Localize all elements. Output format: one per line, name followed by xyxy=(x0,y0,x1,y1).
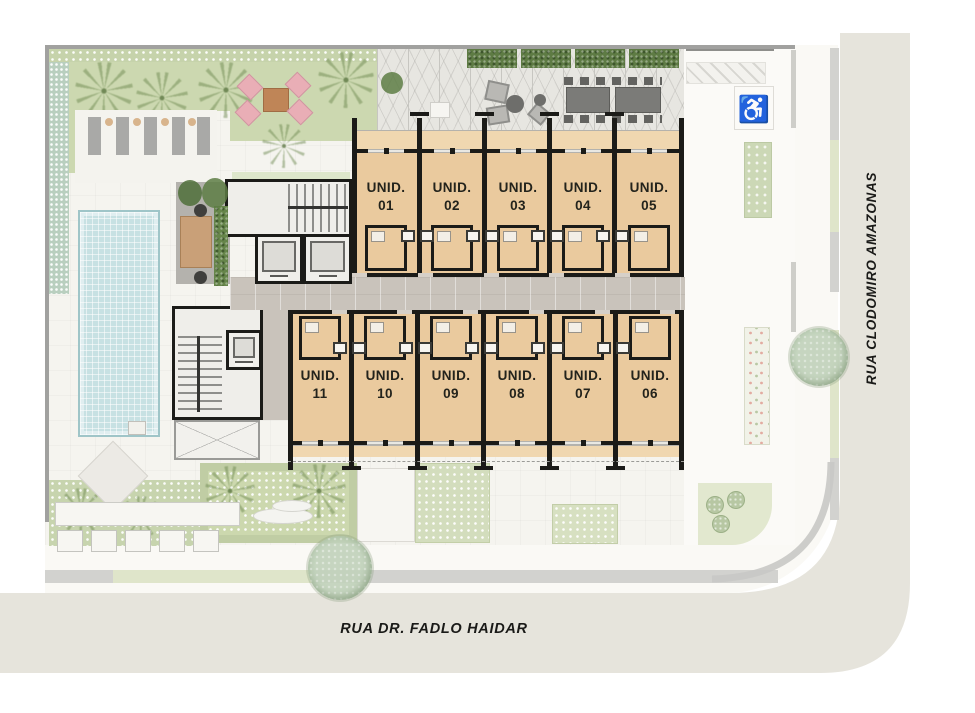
shrub xyxy=(706,496,724,514)
shower xyxy=(436,322,450,333)
hedge-planter xyxy=(575,49,625,68)
site-boundary-left xyxy=(45,45,49,522)
stair-rail xyxy=(197,336,200,412)
street-tree xyxy=(790,328,848,386)
planter-strip xyxy=(232,172,350,179)
window xyxy=(368,149,404,153)
door-opening xyxy=(397,310,412,314)
dining-chairs-row xyxy=(564,77,662,85)
shrub xyxy=(727,491,745,509)
balcony-strip-top xyxy=(352,130,684,149)
wall xyxy=(352,273,684,277)
wall-cap xyxy=(475,112,494,116)
elevator-door xyxy=(270,275,288,280)
lounger-pillow xyxy=(105,118,113,126)
shower xyxy=(634,231,648,242)
paver-square xyxy=(91,530,117,552)
window xyxy=(302,441,338,445)
curb-segment xyxy=(791,50,796,128)
bathroom xyxy=(628,225,670,271)
shower xyxy=(503,231,517,242)
elevator-car xyxy=(262,241,296,272)
shaft-box xyxy=(401,230,415,242)
shaft-box xyxy=(616,342,630,354)
sun-lounger xyxy=(197,117,210,155)
shaft-box xyxy=(333,342,347,354)
lounger-pillow xyxy=(188,118,196,126)
flower-bed xyxy=(744,327,770,445)
green-wall xyxy=(214,206,228,286)
terrace-table xyxy=(180,216,212,268)
curb-segment xyxy=(791,262,796,332)
window xyxy=(499,441,535,445)
unit-label-08: UNID.08 xyxy=(484,367,550,403)
shower xyxy=(568,231,582,242)
wall-cap xyxy=(410,112,429,116)
shaft-box xyxy=(596,230,610,242)
unit-label-03: UNID.03 xyxy=(485,179,551,215)
street-tree xyxy=(308,536,372,600)
street-name-bottom: RUA DR. FADLO HAIDAR xyxy=(314,621,554,637)
elevator-1 xyxy=(255,234,303,284)
door-opening xyxy=(615,273,630,277)
paver-square xyxy=(125,530,151,552)
rock-cluster xyxy=(272,500,312,512)
shower xyxy=(568,322,582,333)
sun-lounger xyxy=(116,117,129,155)
sun-lounger xyxy=(88,117,101,155)
window xyxy=(565,149,601,153)
driveway-hatch xyxy=(686,62,766,84)
shaft-box xyxy=(531,230,545,242)
paver-path xyxy=(55,502,240,526)
shaft-box xyxy=(352,342,366,354)
street-name-right: RUA CLODOMIRO AMAZONAS xyxy=(864,190,879,385)
planting-strip xyxy=(744,142,772,218)
shower xyxy=(305,322,319,333)
pool-step xyxy=(128,421,146,435)
shaft-box xyxy=(399,342,413,354)
sun-lounger xyxy=(144,117,157,155)
wall-cap xyxy=(408,466,427,470)
shaft-box xyxy=(615,230,629,242)
dining-table xyxy=(615,87,661,113)
unit-label-10: UNID.10 xyxy=(352,367,418,403)
wall-cap xyxy=(606,466,625,470)
shower xyxy=(502,322,516,333)
wall xyxy=(288,310,684,314)
wall-cap xyxy=(342,466,361,470)
sun-lounger xyxy=(172,117,185,155)
paver-square xyxy=(57,530,83,552)
window xyxy=(565,441,601,445)
shaft-box xyxy=(465,342,479,354)
wall-cap xyxy=(605,112,624,116)
door-opening xyxy=(660,310,675,314)
shaft-box xyxy=(418,342,432,354)
service-elevator xyxy=(226,330,262,370)
wall-cap xyxy=(540,112,559,116)
shaft-box xyxy=(550,342,564,354)
wood-table xyxy=(263,88,289,112)
elevator-door xyxy=(319,275,337,280)
bathroom xyxy=(629,316,671,360)
hedge-planter xyxy=(467,49,517,68)
swimming-pool xyxy=(78,210,160,437)
door-opening xyxy=(332,310,347,314)
unit-label-05: UNID.05 xyxy=(616,179,682,215)
stair-treads xyxy=(178,336,222,412)
wall-cap xyxy=(474,466,493,470)
door-opening xyxy=(549,273,564,277)
dining-table xyxy=(566,87,610,113)
window xyxy=(433,441,469,445)
window xyxy=(632,441,668,445)
shaft-void xyxy=(174,420,260,460)
shaft-box xyxy=(484,342,498,354)
window xyxy=(631,149,667,153)
shaft-box xyxy=(485,230,499,242)
elevator-door xyxy=(235,361,253,366)
shower xyxy=(635,322,649,333)
shower xyxy=(370,322,384,333)
balcony-strip-bottom xyxy=(288,445,684,457)
elevator-2 xyxy=(303,234,352,284)
elevator-car xyxy=(233,337,255,358)
hedge-planter xyxy=(629,49,679,68)
round-table xyxy=(506,95,524,113)
unit-label-01: UNID.01 xyxy=(353,179,419,215)
paver-square xyxy=(193,530,219,552)
door-opening xyxy=(529,310,544,314)
lounger-pillow xyxy=(161,118,169,126)
elevator-car xyxy=(310,241,345,272)
shaft-box xyxy=(466,230,480,242)
round-stool xyxy=(534,94,546,106)
terrace-chair xyxy=(194,271,207,284)
window xyxy=(500,149,536,153)
setback-dashed-line xyxy=(288,461,684,462)
unit-label-04: UNID.04 xyxy=(550,179,616,215)
shrub xyxy=(712,515,730,533)
corridor-branch xyxy=(263,310,288,420)
door-opening xyxy=(484,273,499,277)
shaft-box xyxy=(420,230,434,242)
shower xyxy=(371,231,385,242)
stair-rail xyxy=(288,206,348,209)
door-opening xyxy=(463,310,478,314)
floor-plan: ♿ UNID.01 UNID.02 UNID.03 UNID.04 UNID. xyxy=(0,0,975,713)
planter xyxy=(178,180,202,206)
wall-cap xyxy=(540,466,559,470)
shaft-box xyxy=(550,230,564,242)
accessible-parking-icon: ♿ xyxy=(738,94,770,124)
hedge-planter xyxy=(521,49,571,68)
planter xyxy=(202,178,228,208)
unit-label-07: UNID.07 xyxy=(550,367,616,403)
terrace-chair xyxy=(194,204,207,217)
site-boundary-top xyxy=(45,45,795,49)
paver-square xyxy=(159,530,185,552)
door-opening xyxy=(418,273,433,277)
potted-plant xyxy=(381,72,403,94)
unit-label-11: UNID.11 xyxy=(287,367,353,403)
side-table xyxy=(430,102,450,118)
window xyxy=(434,149,470,153)
shaft-box xyxy=(597,342,611,354)
unit-label-02: UNID.02 xyxy=(419,179,485,215)
unit-label-09: UNID.09 xyxy=(418,367,484,403)
door-opening xyxy=(352,273,367,277)
unit-label-06: UNID.06 xyxy=(617,367,683,403)
shaft-box xyxy=(531,342,545,354)
door-opening xyxy=(595,310,610,314)
accessible-parking-stall: ♿ xyxy=(734,86,774,130)
window xyxy=(367,441,403,445)
shower xyxy=(437,231,451,242)
lounger-pillow xyxy=(133,118,141,126)
wall xyxy=(288,441,684,445)
